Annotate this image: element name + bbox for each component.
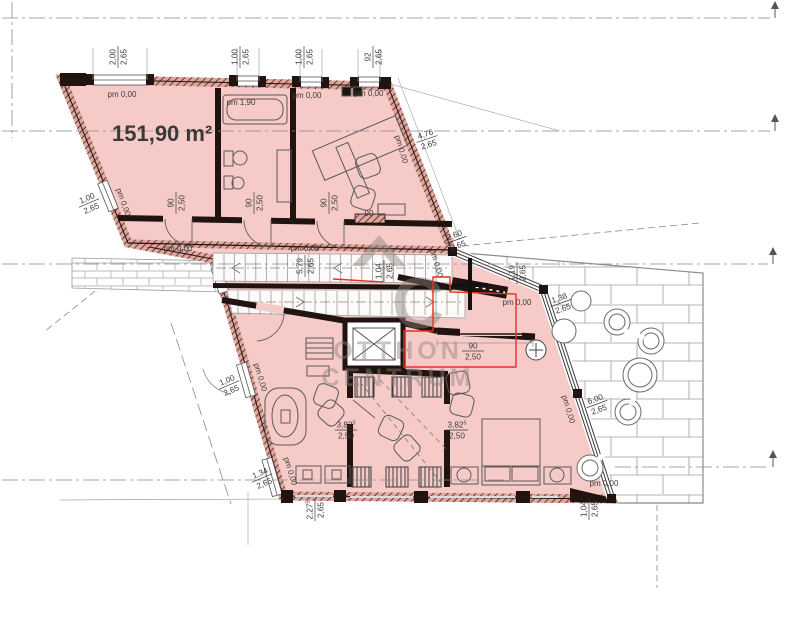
svg-text:2,50: 2,50: [178, 195, 187, 211]
svg-text:2,65: 2,65: [317, 502, 326, 518]
svg-text:1,00: 1,00: [231, 49, 240, 65]
svg-text:92: 92: [364, 52, 373, 62]
svg-text:1,04: 1,04: [580, 501, 589, 517]
svg-text:90: 90: [365, 209, 374, 218]
svg-text:2,65: 2,65: [375, 49, 384, 65]
watermark-line1: OTTHON: [333, 337, 463, 365]
svg-text:2,65: 2,65: [242, 49, 251, 65]
level-label: pm 0,00: [590, 479, 619, 488]
dimension-label: 1,002,65: [215, 372, 243, 399]
svg-text:2,50: 2,50: [331, 195, 340, 211]
svg-text:2,65: 2,65: [307, 258, 316, 274]
level-label: pm 0,00: [293, 91, 322, 100]
svg-text:2,65: 2,65: [386, 263, 395, 279]
area-label: 151,90 m²: [112, 121, 212, 146]
svg-text:2,275: 2,275: [306, 501, 315, 520]
dimension-label: 2,002,65: [109, 46, 129, 68]
svg-text:2,65: 2,65: [591, 501, 600, 517]
svg-text:pm 0,00: pm 0,00: [108, 90, 137, 99]
svg-text:pm 0,00: pm 0,00: [503, 298, 532, 307]
svg-text:2,00: 2,00: [109, 49, 118, 65]
svg-text:pm 0,00: pm 0,00: [590, 479, 619, 488]
floor-plan-svg: C OTTHON CENTRUM 2,002,651,002,651,002,6…: [0, 0, 800, 619]
svg-text:90: 90: [245, 198, 254, 208]
watermark-line2: CENTRUM: [322, 364, 475, 392]
svg-text:2,65: 2,65: [120, 49, 129, 65]
dimension-label: 4,762,65: [414, 127, 441, 153]
svg-text:90: 90: [468, 342, 478, 351]
svg-text:2,65: 2,65: [519, 265, 528, 281]
svg-text:90: 90: [320, 198, 329, 208]
svg-text:pm 1,90: pm 1,90: [227, 98, 256, 107]
dimension-label: 1,002,65: [231, 46, 251, 68]
svg-text:1,19: 1,19: [508, 265, 517, 281]
dimension-label: 2,2752,65: [306, 499, 326, 521]
level-label: pm 0,00: [503, 298, 532, 307]
dimension-label: 1,002,65: [295, 46, 315, 68]
level-label: pm 1,90: [227, 98, 256, 107]
svg-text:1,04: 1,04: [375, 263, 384, 279]
level-label: pm 0,00: [164, 244, 193, 253]
dimension-label: 1,002,65: [75, 190, 103, 217]
svg-text:1,00: 1,00: [295, 49, 304, 65]
level-label: pm 0,00: [291, 244, 320, 253]
level-label: pm 0,00: [355, 89, 384, 98]
svg-text:2,50: 2,50: [338, 432, 354, 441]
entry-pavement: [72, 258, 224, 292]
floor-plan-page: C OTTHON CENTRUM 2,002,651,002,651,002,6…: [0, 0, 800, 619]
level-label: 90: [365, 209, 374, 218]
svg-text:2,50: 2,50: [449, 432, 465, 441]
axis-arrows: [769, 1, 779, 467]
svg-text:2,50: 2,50: [465, 353, 481, 362]
level-label: pm 0,00: [108, 90, 137, 99]
svg-text:90: 90: [167, 198, 176, 208]
svg-text:pm 0,00: pm 0,00: [293, 91, 322, 100]
svg-text:pm 0,00: pm 0,00: [164, 244, 193, 253]
svg-text:2,50: 2,50: [256, 195, 265, 211]
svg-text:5,79: 5,79: [296, 258, 305, 274]
svg-text:pm 0,00: pm 0,00: [291, 244, 320, 253]
svg-text:2,65: 2,65: [306, 49, 315, 65]
svg-text:pm 0,00: pm 0,00: [355, 89, 384, 98]
dimension-label: 922,65: [364, 46, 384, 68]
